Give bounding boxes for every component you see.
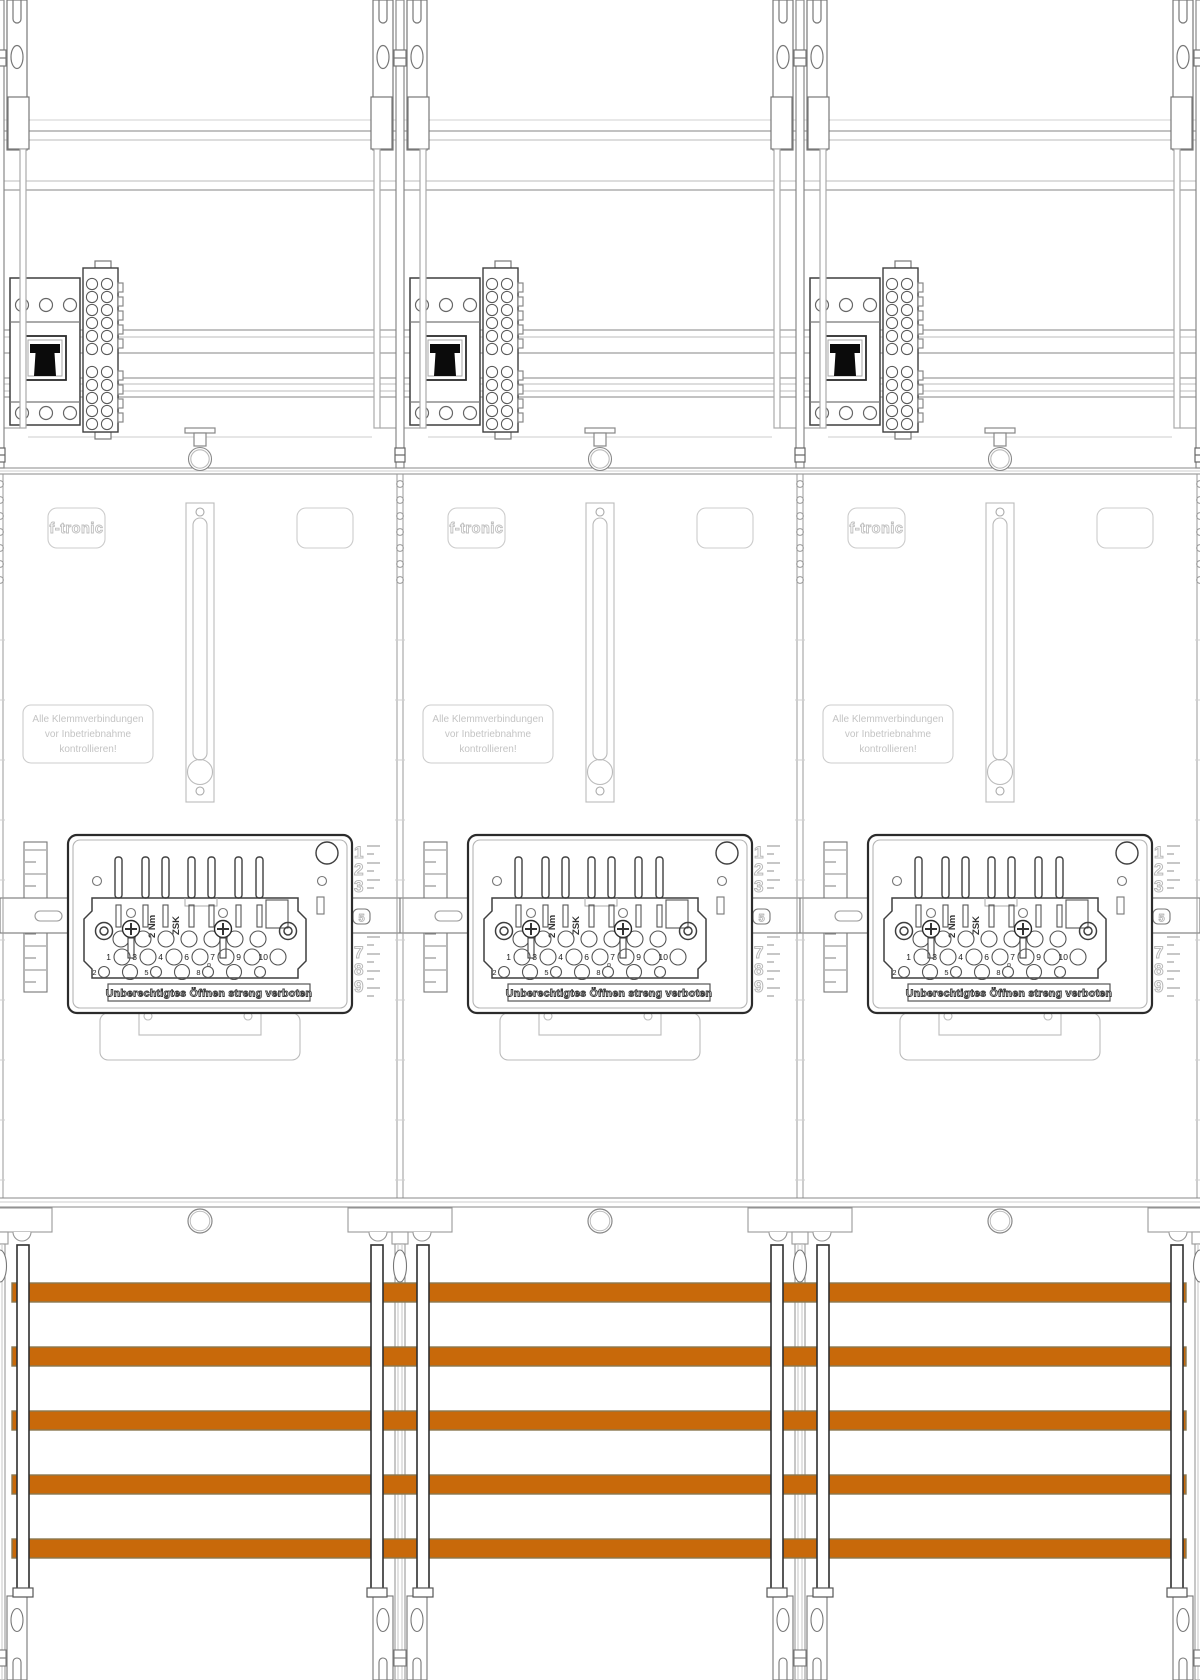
busbar-1 [12,1283,1186,1302]
field-2-bottom [588,1209,612,1233]
field-1-bottom [188,1209,212,1233]
cabinet-drawing: f-tronic Alle Klemmverbindungen vor Inbe… [0,0,1200,1680]
busbar-3 [12,1411,1186,1430]
top-rail-divider-1 [371,0,429,468]
field-3-bottom [988,1209,1012,1233]
busbar-2 [12,1347,1186,1366]
meter-cabinet-screenshot: f-tronic Alle Klemmverbindungen vor Inbe… [0,0,1200,1680]
busbar-4 [12,1475,1186,1494]
busbar-5 [12,1539,1186,1558]
top-rail-divider-2 [771,0,829,468]
